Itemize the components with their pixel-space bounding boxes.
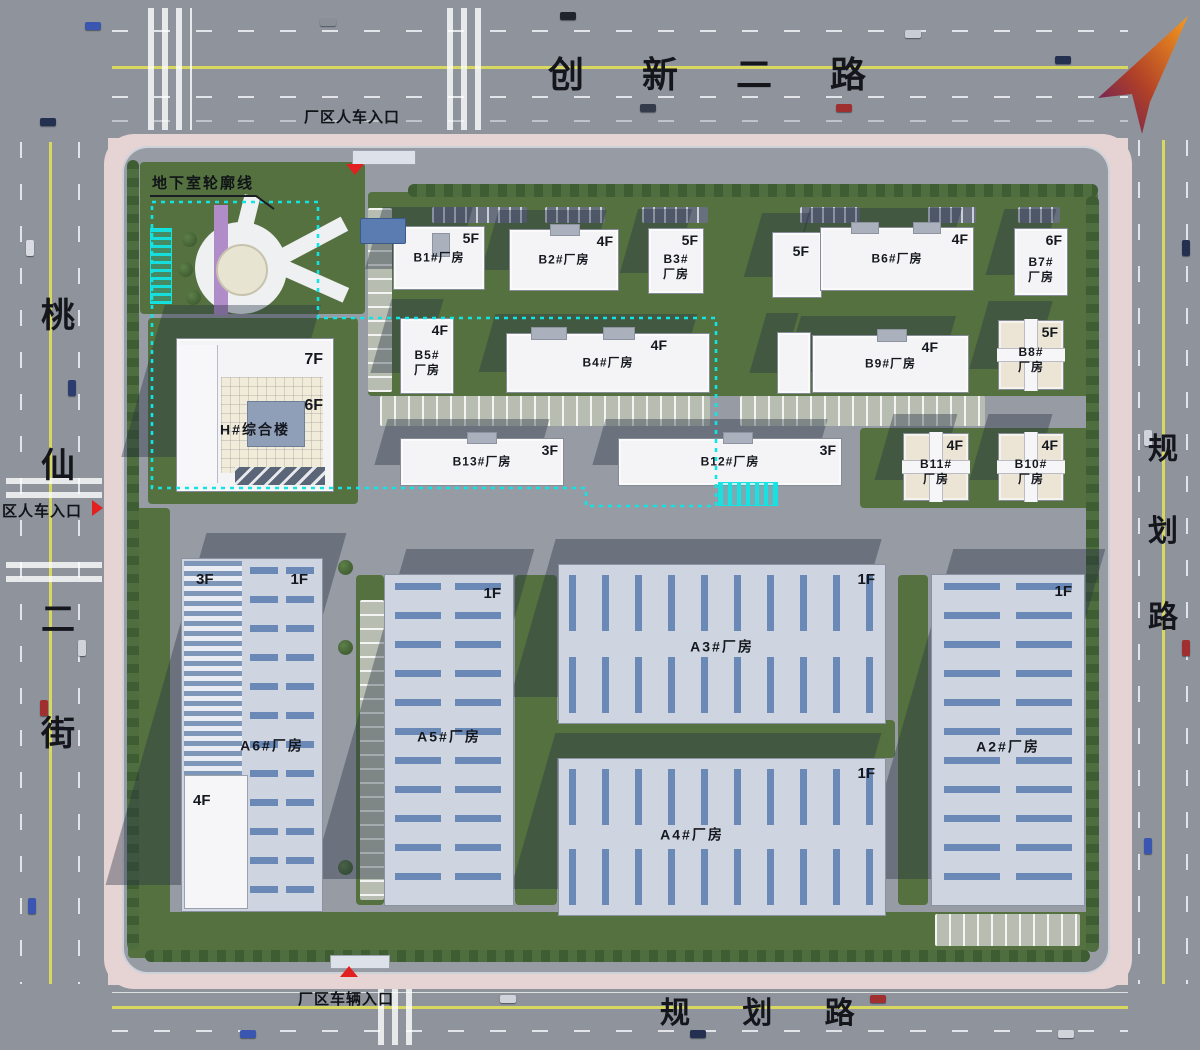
road-name-left-char: 仙: [36, 438, 80, 487]
road-name-bottom: 规 划 路: [660, 988, 877, 1032]
entrance-label-bottom: 厂区车辆入口: [298, 988, 394, 1009]
road-name-top: 创 新 二 路: [548, 46, 890, 98]
compass-north-arrow-icon: [1088, 12, 1192, 140]
compass-arrow-shape: [1098, 16, 1188, 134]
entrance-label-left: 区人车入口: [2, 500, 82, 521]
entrance-marker-icon: [346, 164, 364, 175]
labels-layer: 创 新 二 路 规 划 路 桃 仙 二 街 规 划 路 厂区人车入口 区人车入口…: [0, 0, 1200, 1050]
road-name-left-char: 二: [36, 592, 80, 641]
road-name-right-char: 规: [1144, 424, 1182, 468]
road-name-right-char: 划: [1144, 506, 1182, 550]
entrance-marker-icon: [340, 966, 358, 977]
entrance-label-top: 厂区人车入口: [304, 106, 400, 127]
entrance-marker-icon: [92, 500, 103, 516]
site-plan-scene: 5F B1#厂房 4F B2#厂房 5F B3# 厂房 5F 4F B6#厂房 …: [0, 0, 1200, 1050]
road-name-right-char: 路: [1144, 592, 1182, 636]
road-name-left-char: 街: [36, 706, 80, 755]
basement-outline-label: 地下室轮廓线: [152, 172, 254, 193]
road-name-left-char: 桃: [36, 288, 80, 337]
